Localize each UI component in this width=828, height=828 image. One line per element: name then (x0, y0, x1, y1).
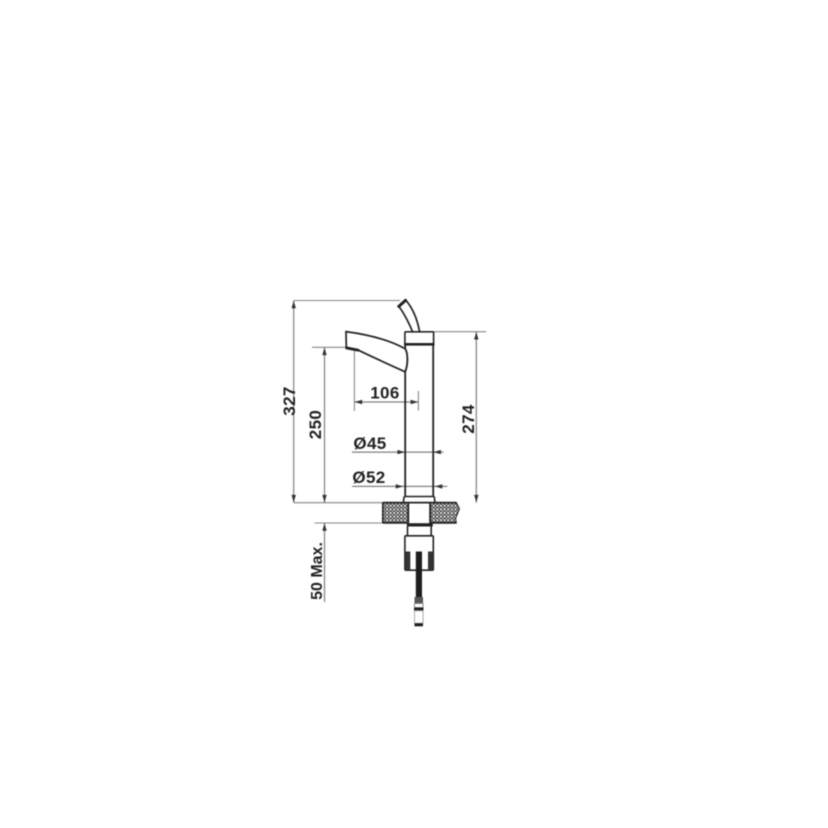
svg-text:106: 106 (370, 384, 400, 403)
svg-text:250: 250 (306, 410, 325, 440)
svg-text:274: 274 (459, 404, 478, 434)
svg-text:Ø52: Ø52 (352, 468, 385, 487)
svg-text:327: 327 (280, 386, 299, 416)
svg-text:50 Max.: 50 Max. (309, 542, 326, 600)
svg-text:Ø45: Ø45 (353, 434, 386, 453)
